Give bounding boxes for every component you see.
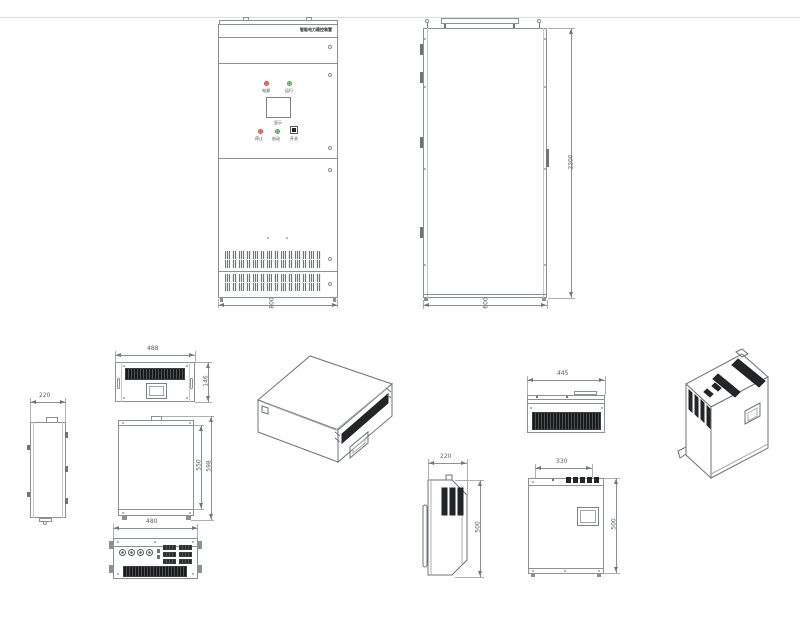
dim-arrow [219,303,224,307]
extension-line [592,464,593,478]
dim-arrow [461,461,466,465]
extension-line [162,416,214,417]
extension-line [548,298,575,299]
extension-line [605,376,606,395]
screw-dot [117,541,119,543]
foot [597,574,601,577]
dim-arrow [206,396,210,401]
vent-grille [532,412,601,430]
caster-wheel [43,521,47,525]
vent-grille [123,566,187,577]
rack-side-body [30,422,66,518]
screw-dot [598,570,600,572]
door-hinge [420,44,423,55]
dim-arrow [429,461,434,465]
screw [328,257,332,261]
engineering-drawing-canvas: 智能电力稳控装置 电源 运行 显示 停止 启动 开关 [0,0,800,617]
dim-rack-front-width: 488 [147,346,158,352]
rail-screw [566,396,568,398]
screw-dot [189,512,191,514]
terminal-block [163,545,176,550]
dim-arrow [536,466,541,470]
screw-dot [532,481,534,483]
control-label: 启动 [272,137,280,141]
screw-dot [544,86,546,88]
dim-cabinet-height: 2200 [569,154,575,169]
screw-dot [601,407,603,409]
dim-arrow [206,363,210,368]
round-connector [146,549,153,556]
screw-dot [123,365,125,367]
dim-arrow [199,503,203,508]
rail-clip [65,498,68,504]
rack-box-body [118,420,194,516]
small-connector [157,555,160,559]
vent-slot [450,488,455,515]
dim-arrow [614,479,618,484]
dim-arrow [541,303,546,307]
dim-arrow [528,378,533,382]
terminal-block [179,545,192,550]
screw-dot [424,86,426,88]
dim-rack-front-height: 146 [204,375,210,386]
dimension-line [527,380,605,381]
screw [328,168,332,172]
dim-arrow [569,292,573,297]
screw-dot [122,512,124,514]
dim-arrow [332,303,337,307]
wall-unit-isometric-view [665,348,785,483]
panel-seam [528,568,604,569]
panel-seam [543,28,544,298]
mounting-slot [190,378,193,389]
screw-dot [286,237,288,239]
screw [328,282,332,286]
wall-front-body [528,478,604,574]
guide-line [0,17,800,18]
control-label: 停止 [255,137,263,141]
iso-vent-slot [689,390,692,412]
door-hinge [420,137,423,148]
screw-dot [186,365,188,367]
dimension-line [535,468,592,469]
dim-rack-box-height: 550 [197,459,203,470]
screw-dot [122,422,124,424]
screw-dot [186,397,188,399]
screw [328,45,332,49]
cabinet-side-body [423,28,547,298]
dim-arrow [478,571,482,576]
dim-arrow [569,29,573,34]
dim-rack-rear-width: 480 [146,519,157,525]
rack-unit-isometric-view [246,350,398,470]
dim-arrow [31,400,36,404]
top-knob [446,475,452,480]
terminal-block [587,477,592,483]
dim-arrow [424,303,429,307]
mounting-ear [198,541,202,549]
terminal-block [179,552,192,557]
stop-button [258,129,263,134]
iso-vent-slot [707,406,710,428]
extension-line [337,299,338,308]
round-connector [119,549,126,556]
lifting-frame [441,18,519,24]
terminal-block [566,477,571,483]
screw-dot [117,573,119,575]
terminal-block [179,559,192,564]
display-window-inner [580,510,596,523]
rail-clip [65,466,68,472]
foot [220,298,223,302]
iso-foot-bracket [678,447,686,458]
terminal-block [580,477,585,483]
dim-arrow [192,526,197,530]
extension-line [195,402,212,403]
extension-line [467,459,468,495]
panel-seam [218,271,338,272]
screw-dot [189,422,191,424]
panel-seam [62,422,63,518]
screw-dot [192,573,194,575]
vent-slot [458,488,463,515]
screw-dot [544,38,546,40]
louver-vent [225,251,322,259]
panel-seam [218,37,338,38]
dim-rack-side-width: 220 [39,393,50,399]
extension-line [194,509,204,510]
dim-arrow [614,567,618,572]
round-connector [137,549,144,556]
lifting-lug [306,17,312,21]
louver-vent [225,274,322,282]
display-window-inner [149,386,164,396]
top-handle [46,417,58,423]
mounting-slot [117,378,120,389]
nameplate-label: 智能电力稳控装置 [300,28,332,32]
foot [542,298,546,301]
ear-seam [121,362,122,402]
round-connector [128,549,135,556]
dim-wall-side-width: 220 [440,454,451,460]
dim-front-width: 800 [270,297,276,308]
rail-screw [536,396,538,398]
panel-seam [528,485,604,486]
dim-wall-front-height: 500 [612,518,618,529]
louver-vent [225,283,322,291]
foot [531,574,535,577]
extension-line [197,524,198,538]
terminal-block [573,477,578,483]
dim-arrow [116,353,121,357]
iso-vent-slot [701,400,704,422]
panel-seam [33,422,34,518]
terminal-block [163,559,176,564]
dim-arrow [199,426,203,431]
foot [333,298,336,302]
panel-seam [118,509,194,510]
hmi-screen-label: 显示 [274,121,282,125]
screw [328,146,332,150]
screw-dot [424,264,426,266]
panel-seam [427,28,428,298]
screw [328,73,332,77]
dim-arrow [586,466,591,470]
panel-seam [118,425,194,426]
terminal-block [163,552,176,557]
indicator-lamp-green [287,81,292,86]
dimension-line [113,528,198,529]
screw-dot [530,407,532,409]
hmi-screen [266,97,291,118]
rail-clip [65,432,68,438]
screw-dot [267,237,269,239]
foot [122,516,127,520]
extension-line [547,300,548,309]
vent-slot [442,488,447,515]
door-hinge [420,72,423,83]
dim-arrow [60,400,65,404]
rail-seam [527,399,605,400]
iso-vent-slot [695,395,698,417]
louver-vent [225,260,322,268]
start-button [275,129,280,134]
screw-dot [154,541,156,543]
lifting-lug [243,17,249,21]
dim-arrow [599,378,604,382]
screw-dot [564,570,566,572]
dim-rack-box-overall-height: 598 [207,460,213,471]
dim-arrow [189,353,194,357]
extension-line [191,520,214,521]
vent-grille [125,368,185,380]
small-connector [157,549,160,553]
dimension-line [115,355,195,356]
door-hinge [420,227,423,238]
dim-arrow [209,514,213,519]
screw-dot [544,168,546,170]
mounting-ear [198,565,202,573]
dimension-line [218,305,338,306]
screw-dot [532,570,534,572]
screw-dot [192,541,194,543]
dim-arrow [209,417,213,422]
dim-wall-side-height: 500 [476,521,482,532]
dim-wall-top-width: 445 [557,371,568,377]
indicator-lamp-red [264,81,269,86]
rail-screw [552,479,554,481]
dim-arrow [114,526,119,530]
extension-line [455,577,484,578]
rail-clip [27,445,30,450]
screw-dot [123,397,125,399]
dim-cabinet-depth: 600 [484,297,490,308]
selector-switch-knob [292,128,296,132]
base-seam [423,294,547,295]
lamp-label: 运行 [285,89,293,93]
screw-dot [424,38,426,40]
side-handle [423,505,427,567]
dim-arrow [478,481,482,486]
door-handle [546,149,549,167]
foot [424,298,428,301]
screw-dot [424,168,426,170]
screw-dot [544,264,546,266]
terminal-block [594,477,599,483]
extension-line [604,573,620,574]
dim-wall-front-width: 330 [556,459,567,465]
control-label: 开关 [290,137,298,141]
panel-seam [218,158,338,159]
panel-seam [218,63,338,64]
rail-clip [27,492,30,497]
lamp-label: 电源 [262,89,270,93]
